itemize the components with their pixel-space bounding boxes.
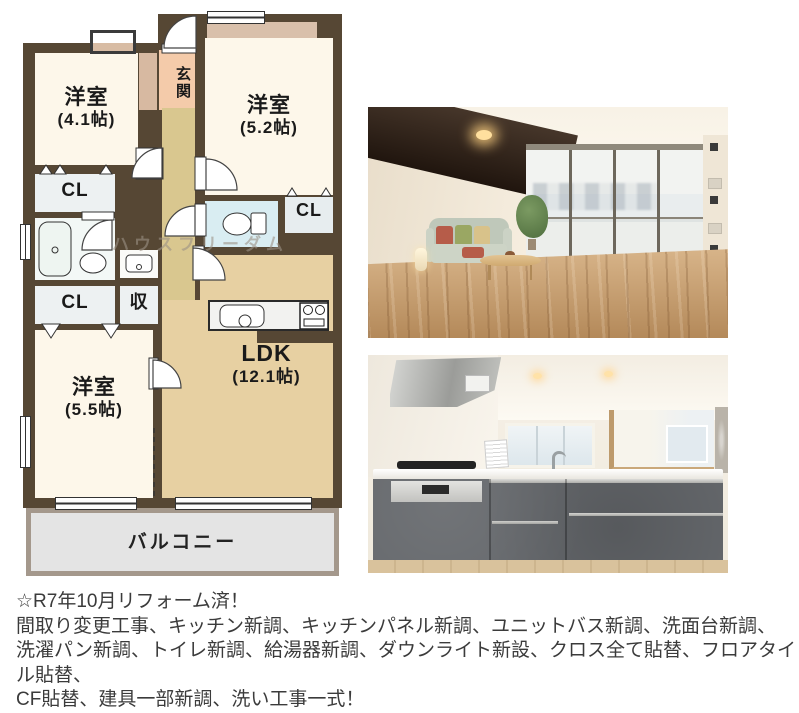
cabinet-rail	[489, 479, 723, 483]
plant-pot	[528, 239, 536, 250]
label-closet-top-left: CL	[35, 180, 115, 201]
range-hood-sticker	[465, 375, 490, 392]
label-closet-bottom-left: CL	[35, 292, 115, 313]
downlight	[533, 373, 542, 379]
floor-lamp	[415, 248, 428, 271]
living-window-wall	[526, 144, 702, 266]
label-room-5-5: 洋室 (5.5帖)	[35, 376, 153, 419]
cabinet-handle-rail	[569, 513, 723, 516]
counter-pass-through	[609, 410, 713, 471]
note-line-1: ☆R7年10月リフォーム済！	[16, 590, 796, 615]
watermark: ハウスフリーダム	[112, 230, 332, 255]
intercom-panel	[708, 178, 722, 189]
label-balcony: バルコニー	[26, 532, 339, 553]
plant-foliage	[516, 195, 548, 238]
room-size: (5.5帖)	[35, 400, 153, 419]
room-name: 洋室	[65, 86, 109, 109]
room-size: (4.1帖)	[35, 110, 138, 129]
label-ldk: LDK (12.1帖)	[200, 341, 333, 386]
cabinet-seam	[565, 479, 567, 560]
living-right-wall	[703, 135, 728, 269]
room-name: 洋室	[72, 376, 116, 399]
table-leg	[488, 265, 490, 280]
window-frame	[569, 150, 572, 266]
room-name: LDK	[241, 340, 291, 366]
renovation-notes: ☆R7年10月リフォーム済！ 間取り変更工事、キッチン新調、キッチンパネル新調、…	[16, 590, 796, 713]
counter-display-card	[484, 439, 509, 469]
gas-stove	[397, 461, 476, 470]
cushion	[455, 225, 472, 246]
label-closet-right: CL	[285, 200, 333, 220]
table-leg	[530, 265, 532, 280]
label-room-4-1: 洋室 (4.1帖)	[35, 86, 138, 129]
faucet	[552, 451, 566, 471]
living-window-glimpse	[666, 425, 708, 462]
note-line-3: 洗濯パン新調、トイレ新調、給湯器新調、ダウンライト新設、クロス全て貼替、フロアタ…	[16, 639, 796, 688]
downlight	[604, 371, 613, 377]
window-frame	[613, 150, 616, 266]
intercom-panel	[708, 223, 722, 234]
accent-wall	[715, 407, 728, 472]
window-view-buildings	[533, 183, 656, 211]
cushion	[436, 226, 453, 246]
window-frame	[657, 150, 660, 266]
room-name: 洋室	[247, 94, 291, 117]
room-size: (5.2帖)	[205, 118, 333, 137]
kitchen-floor	[368, 560, 728, 573]
counter-top	[373, 469, 722, 479]
listing-flyer: { "floorplan": { "watermark": "ハウスフリーダム"…	[0, 0, 799, 689]
label-entrance: 玄関	[166, 56, 190, 110]
stove-control-panel	[391, 481, 482, 502]
wall-switch	[710, 143, 718, 151]
label-room-5-2: 洋室 (5.2帖)	[205, 94, 333, 137]
photo-kitchen	[368, 355, 728, 573]
cushion	[474, 226, 490, 246]
kitchen-cabinets	[373, 479, 722, 560]
window-frame	[536, 426, 538, 466]
photo-living-room	[368, 107, 728, 338]
room-size: (12.1帖)	[200, 367, 333, 386]
wall-switch	[710, 196, 718, 204]
floorplan: 洋室 (4.1帖) 洋室 (5.2帖) 洋室 (5.5帖) LDK (12.1帖…	[20, 8, 345, 578]
cabinet-seam	[489, 479, 491, 560]
coffee-table	[480, 255, 541, 280]
house-plant	[516, 195, 548, 250]
note-line-4: CF貼替、建具一部新調、洗い工事一式！	[16, 688, 796, 713]
kitchen-window	[505, 423, 595, 469]
note-line-2: 間取り変更工事、キッチン新調、キッチンパネル新調、ユニットバス新調、洗面台新調、	[16, 615, 796, 640]
grill-door	[422, 485, 449, 494]
drawer-handle	[492, 521, 558, 524]
label-storage: 収	[120, 292, 158, 312]
